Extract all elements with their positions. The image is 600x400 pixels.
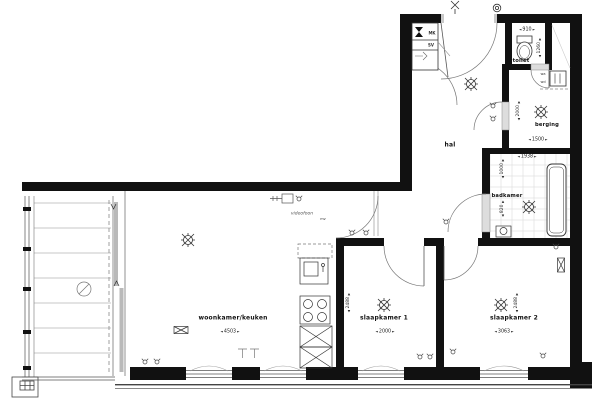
doorbell-icon bbox=[493, 4, 501, 12]
dim-badkamer-width: 1938 bbox=[517, 155, 536, 160]
label-dryer: wd bbox=[540, 80, 545, 84]
floor-plan: woonkamer/keuken 4503 slaapkamer 1 2000 … bbox=[0, 0, 600, 400]
radiator-woonkamer bbox=[174, 327, 188, 334]
kitchen-hob bbox=[300, 296, 330, 324]
room-label-slaapkamer-1: slaapkamer 1 bbox=[360, 315, 408, 322]
dim-toilet-width: 910 bbox=[519, 28, 535, 33]
light-woonkamer bbox=[181, 233, 195, 247]
light-berging bbox=[534, 105, 548, 119]
door-slaapkamer-1 bbox=[384, 246, 424, 286]
door-toilet bbox=[531, 64, 549, 88]
dim-toilet-depth: 1260 bbox=[538, 38, 543, 58]
intercom-panel bbox=[270, 194, 302, 203]
label-meter-cupboard: MK bbox=[428, 31, 435, 36]
dim-badkamer-depth-2: 820 bbox=[501, 201, 506, 218]
entrance-symbols bbox=[451, 1, 501, 14]
room-label-berging: berging bbox=[535, 122, 559, 128]
door-slaapkamer-2 bbox=[444, 246, 478, 280]
light-point-icon bbox=[451, 1, 459, 14]
light-slaapkamer-2 bbox=[494, 298, 508, 312]
radiators bbox=[174, 258, 565, 334]
room-label-badkamer: badkamer bbox=[492, 193, 523, 199]
room-label-slaapkamer-2: slaapkamer 2 bbox=[490, 315, 538, 322]
kitchen-block bbox=[298, 244, 332, 368]
dim-berging-width: 1500 bbox=[528, 138, 547, 143]
dim-slaapkamer-2-width: 3063 bbox=[494, 330, 513, 335]
floor-plan-drawing bbox=[0, 0, 600, 400]
shaft-diagonal bbox=[552, 25, 570, 68]
label-ventilation: mv bbox=[320, 217, 325, 221]
label-washer: wa bbox=[540, 72, 545, 76]
furniture-glyph bbox=[238, 349, 259, 358]
radiator-slaapkamer-2 bbox=[558, 258, 565, 272]
dim-slaapkamer-1-width: 2000 bbox=[375, 330, 394, 335]
bottom-windows bbox=[22, 366, 592, 389]
dim-berging-depth: 2000 bbox=[517, 101, 522, 121]
kitchen-sink bbox=[300, 258, 328, 284]
dim-slaapkamer-1-depth: 2488 bbox=[347, 293, 352, 313]
door-front-entrance bbox=[441, 14, 497, 79]
room-label-woonkamer-keuken: woonkamer/keuken bbox=[198, 315, 267, 322]
door-living-room bbox=[336, 191, 378, 238]
room-label-toilet: toilet bbox=[513, 58, 530, 64]
label-shaft: SV bbox=[428, 43, 434, 48]
kitchen-appliances bbox=[300, 326, 332, 368]
light-badkamer bbox=[522, 200, 536, 214]
light-hal bbox=[464, 77, 478, 91]
dim-slaapkamer-2-depth: 2488 bbox=[515, 293, 520, 313]
door-badkamer bbox=[448, 194, 490, 232]
room-label-hal: hal bbox=[445, 142, 456, 149]
dim-badkamer-depth: 1000 bbox=[501, 159, 506, 179]
dim-woonkamer-width: 4503 bbox=[220, 330, 239, 335]
wc-fixture bbox=[517, 36, 532, 60]
balcony-sliding-door bbox=[109, 191, 125, 376]
door-berging bbox=[474, 102, 509, 130]
light-slaapkamer-1 bbox=[377, 298, 391, 312]
bathtub bbox=[547, 164, 566, 236]
balcony-deck bbox=[34, 196, 111, 377]
washbasin bbox=[496, 226, 511, 237]
label-intercom: videofoon bbox=[291, 212, 313, 217]
balcony-railing bbox=[23, 196, 31, 377]
